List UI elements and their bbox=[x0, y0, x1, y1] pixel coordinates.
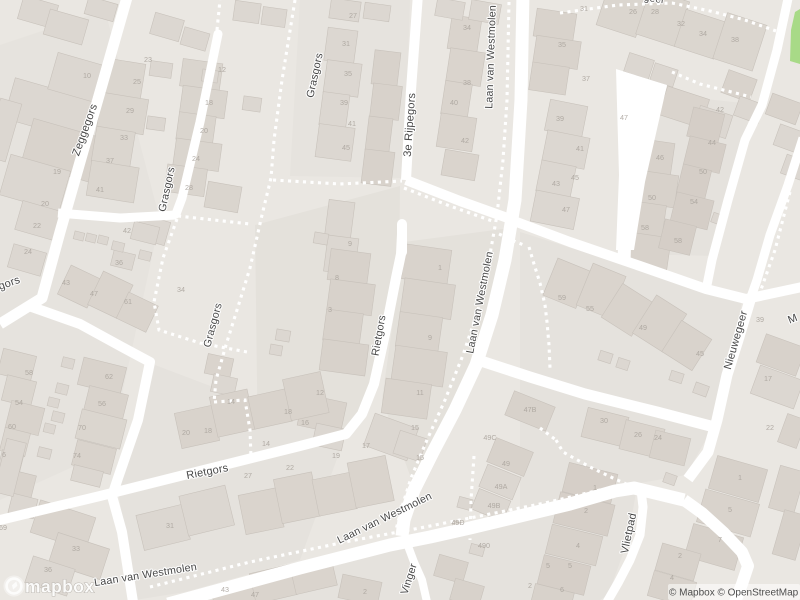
svg-text:43: 43 bbox=[62, 278, 70, 287]
svg-text:17: 17 bbox=[362, 441, 370, 450]
svg-text:55: 55 bbox=[586, 304, 594, 313]
svg-text:25: 25 bbox=[133, 77, 141, 86]
svg-text:3: 3 bbox=[328, 305, 332, 314]
svg-text:26: 26 bbox=[634, 430, 642, 439]
svg-text:47: 47 bbox=[562, 205, 570, 214]
svg-text:33: 33 bbox=[72, 544, 80, 553]
svg-text:47: 47 bbox=[620, 113, 628, 122]
svg-text:62: 62 bbox=[105, 372, 113, 381]
svg-text:45: 45 bbox=[342, 143, 350, 152]
svg-text:15: 15 bbox=[416, 453, 424, 462]
svg-text:74: 74 bbox=[73, 451, 81, 460]
svg-text:1: 1 bbox=[593, 483, 597, 492]
svg-text:© Mapbox © OpenStreetMap: © Mapbox © OpenStreetMap bbox=[669, 588, 799, 599]
svg-text:50: 50 bbox=[648, 193, 656, 202]
svg-text:58: 58 bbox=[674, 236, 682, 245]
svg-text:mapbox: mapbox bbox=[25, 577, 95, 597]
svg-text:27: 27 bbox=[244, 471, 252, 480]
svg-text:41: 41 bbox=[348, 119, 356, 128]
svg-text:18: 18 bbox=[204, 426, 212, 435]
svg-text:56: 56 bbox=[98, 399, 106, 408]
svg-text:7: 7 bbox=[718, 535, 722, 544]
svg-text:46: 46 bbox=[656, 153, 664, 162]
svg-text:34: 34 bbox=[699, 29, 707, 38]
svg-text:11: 11 bbox=[416, 388, 423, 397]
svg-text:22: 22 bbox=[286, 463, 294, 472]
svg-text:1: 1 bbox=[438, 263, 442, 272]
svg-text:4: 4 bbox=[576, 541, 580, 550]
svg-text:44: 44 bbox=[708, 138, 716, 147]
svg-text:50: 50 bbox=[699, 167, 707, 176]
svg-text:17: 17 bbox=[764, 374, 772, 383]
svg-text:43: 43 bbox=[552, 179, 560, 188]
svg-text:5: 5 bbox=[546, 561, 550, 570]
svg-text:31: 31 bbox=[342, 39, 350, 48]
svg-text:18: 18 bbox=[205, 98, 213, 107]
svg-text:28: 28 bbox=[185, 183, 193, 192]
svg-text:34: 34 bbox=[463, 23, 471, 32]
svg-text:14: 14 bbox=[227, 397, 235, 406]
svg-text:18: 18 bbox=[284, 407, 292, 416]
svg-text:29: 29 bbox=[126, 106, 134, 115]
svg-text:41: 41 bbox=[96, 185, 104, 194]
svg-text:39: 39 bbox=[556, 114, 564, 123]
svg-text:5: 5 bbox=[568, 561, 572, 570]
svg-text:6: 6 bbox=[560, 585, 564, 594]
svg-text:35: 35 bbox=[558, 40, 566, 49]
svg-text:2: 2 bbox=[584, 506, 588, 515]
svg-text:39: 39 bbox=[340, 98, 348, 107]
svg-text:42: 42 bbox=[461, 136, 469, 145]
svg-text:61: 61 bbox=[124, 297, 132, 306]
svg-text:38: 38 bbox=[731, 35, 739, 44]
svg-text:10: 10 bbox=[83, 71, 91, 80]
svg-text:37: 37 bbox=[582, 74, 590, 83]
svg-text:20: 20 bbox=[41, 199, 49, 208]
svg-text:34: 34 bbox=[177, 285, 185, 294]
svg-text:27: 27 bbox=[349, 11, 357, 20]
svg-text:49C: 49C bbox=[483, 433, 496, 442]
svg-text:31: 31 bbox=[580, 4, 588, 13]
svg-text:45: 45 bbox=[696, 349, 704, 358]
svg-text:2: 2 bbox=[528, 581, 532, 590]
svg-text:36: 36 bbox=[44, 565, 52, 574]
svg-text:49D: 49D bbox=[451, 518, 464, 527]
svg-text:70: 70 bbox=[78, 423, 86, 432]
svg-text:26: 26 bbox=[629, 7, 637, 16]
svg-text:36: 36 bbox=[115, 258, 123, 267]
svg-text:14: 14 bbox=[262, 439, 270, 448]
svg-text:38: 38 bbox=[463, 78, 471, 87]
svg-text:49A: 49A bbox=[495, 482, 508, 491]
svg-text:32: 32 bbox=[677, 19, 685, 28]
svg-text:42: 42 bbox=[716, 105, 724, 114]
svg-text:59: 59 bbox=[558, 293, 566, 302]
svg-text:12: 12 bbox=[218, 65, 226, 74]
svg-text:54: 54 bbox=[15, 398, 23, 407]
svg-text:15: 15 bbox=[411, 423, 419, 432]
svg-text:47: 47 bbox=[90, 289, 98, 298]
svg-text:20: 20 bbox=[200, 126, 208, 135]
svg-text:49: 49 bbox=[639, 323, 647, 332]
svg-text:4: 4 bbox=[670, 573, 674, 582]
svg-text:42: 42 bbox=[123, 226, 131, 235]
svg-text:47: 47 bbox=[251, 590, 259, 599]
svg-text:12: 12 bbox=[316, 388, 324, 397]
svg-text:41: 41 bbox=[576, 144, 584, 153]
svg-text:22: 22 bbox=[33, 221, 41, 230]
svg-text:16: 16 bbox=[301, 418, 309, 427]
svg-text:33: 33 bbox=[120, 133, 128, 142]
svg-text:24: 24 bbox=[24, 247, 32, 256]
svg-text:31: 31 bbox=[166, 521, 174, 530]
svg-text:490: 490 bbox=[478, 541, 490, 550]
svg-text:58: 58 bbox=[641, 223, 649, 232]
svg-text:58: 58 bbox=[25, 368, 33, 377]
svg-text:9: 9 bbox=[428, 333, 432, 342]
svg-text:39: 39 bbox=[756, 315, 764, 324]
svg-text:43: 43 bbox=[221, 585, 229, 594]
svg-text:23: 23 bbox=[144, 55, 152, 64]
svg-text:2: 2 bbox=[678, 551, 682, 560]
svg-text:54: 54 bbox=[690, 197, 698, 206]
svg-text:8: 8 bbox=[335, 273, 339, 282]
svg-text:40: 40 bbox=[450, 98, 458, 107]
svg-text:35: 35 bbox=[344, 69, 352, 78]
svg-text:19: 19 bbox=[332, 451, 340, 460]
svg-text:60: 60 bbox=[8, 422, 16, 431]
svg-text:2: 2 bbox=[363, 587, 367, 596]
svg-text:49: 49 bbox=[502, 459, 510, 468]
svg-text:5: 5 bbox=[728, 505, 732, 514]
svg-text:47B: 47B bbox=[524, 405, 537, 414]
svg-text:30: 30 bbox=[600, 416, 608, 425]
svg-text:24: 24 bbox=[654, 433, 662, 442]
svg-text:19: 19 bbox=[53, 167, 61, 176]
svg-text:20: 20 bbox=[182, 428, 190, 437]
svg-text:28: 28 bbox=[651, 7, 659, 16]
svg-text:24: 24 bbox=[192, 154, 200, 163]
svg-text:37: 37 bbox=[106, 156, 114, 165]
svg-text:22: 22 bbox=[766, 423, 774, 432]
svg-text:6: 6 bbox=[2, 450, 6, 459]
svg-text:9: 9 bbox=[348, 239, 352, 248]
svg-text:69: 69 bbox=[0, 523, 7, 532]
svg-text:1: 1 bbox=[738, 473, 742, 482]
svg-text:49B: 49B bbox=[488, 501, 501, 510]
svg-text:45: 45 bbox=[571, 173, 579, 182]
